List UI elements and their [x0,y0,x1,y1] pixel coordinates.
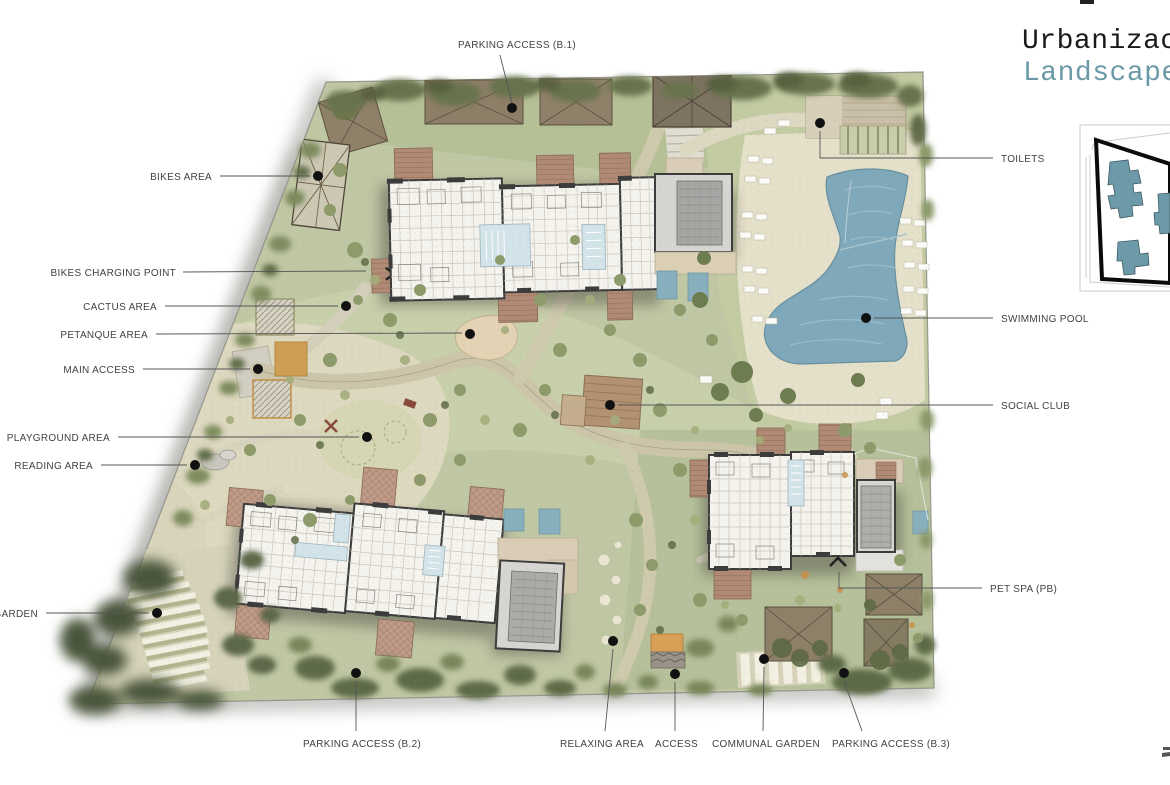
svg-text:RELAXING AREA: RELAXING AREA [560,739,644,750]
svg-text:BIKES CHARGING POINT: BIKES CHARGING POINT [51,268,176,279]
svg-text:PARKING ACCESS (B.2): PARKING ACCESS (B.2) [303,739,421,750]
svg-text:SWIMMING POOL: SWIMMING POOL [1001,314,1089,325]
svg-text:PARKING ACCESS (B.3): PARKING ACCESS (B.3) [832,739,950,750]
svg-text:ACCESS: ACCESS [655,739,698,750]
svg-text:MAIN ACCESS: MAIN ACCESS [63,365,135,376]
svg-text:TOILETS: TOILETS [1001,154,1045,165]
svg-text:COMMUNAL GARDEN: COMMUNAL GARDEN [712,739,820,750]
svg-text:BIKES AREA: BIKES AREA [150,172,212,183]
svg-text:PET SPA (PB): PET SPA (PB) [990,584,1057,595]
svg-text:CACTUS AREA: CACTUS AREA [83,302,157,313]
svg-text:READING AREA: READING AREA [14,461,93,472]
svg-text:PLAYGROUND AREA: PLAYGROUND AREA [7,433,110,444]
svg-text:SOCIAL CLUB: SOCIAL CLUB [1001,401,1070,412]
svg-text:PETANQUE AREA: PETANQUE AREA [60,330,148,341]
svg-text:GARDEN: GARDEN [0,609,38,620]
svg-text:PARKING ACCESS (B.1): PARKING ACCESS (B.1) [458,40,576,51]
svg-text:Landscape M: Landscape M [1023,58,1170,89]
svg-text:Urbanización: Urbanización [1022,26,1170,57]
